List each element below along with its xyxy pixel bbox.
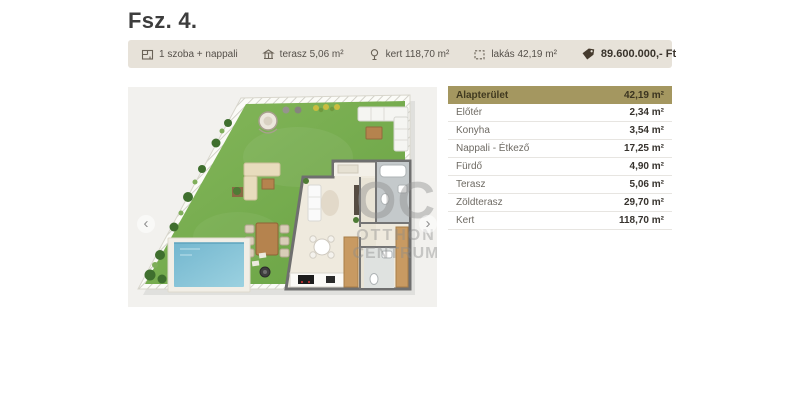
row-value: 17,25 m² [624, 143, 664, 154]
carousel-prev-button[interactable]: ‹ [137, 215, 155, 233]
room-icon [141, 48, 154, 61]
table-row: Zöldterasz 29,70 m² [448, 194, 672, 212]
table-row: Nappali - Étkező 17,25 m² [448, 140, 672, 158]
carousel-next-button[interactable]: › [419, 215, 437, 233]
row-label: Nappali - Étkező [456, 143, 529, 154]
summary-item-label: lakás 42,19 m² [491, 49, 557, 60]
row-value: 4,90 m² [630, 161, 664, 172]
row-value: 2,34 m² [630, 107, 664, 118]
page-title: Fsz. 4. [128, 9, 672, 32]
price-label: 89.600.000,- Ft [601, 48, 676, 60]
listing-detail: Fsz. 4. 1 szoba + nappali terasz 5,06 m² [128, 0, 672, 307]
header-value: 42,19 m² [624, 90, 664, 101]
terrace-icon [262, 48, 275, 61]
price: 89.600.000,- Ft [581, 47, 676, 61]
header-label: Alapterület [456, 90, 508, 101]
summary-item-rooms: 1 szoba + nappali [141, 48, 238, 61]
summary-item-apartment: lakás 42,19 m² [473, 48, 557, 61]
table-row: Előtér 2,34 m² [448, 104, 672, 122]
row-label: Kert [456, 215, 474, 226]
row-label: Zöldterasz [456, 197, 503, 208]
row-label: Fürdő [456, 161, 482, 172]
table-header-row: Alapterület 42,19 m² [448, 86, 672, 104]
garden-icon [368, 48, 381, 61]
property-summary-bar: 1 szoba + nappali terasz 5,06 m² kert 11… [128, 40, 672, 68]
summary-item-label: terasz 5,06 m² [280, 49, 344, 60]
table-row: Kert 118,70 m² [448, 212, 672, 230]
row-value: 118,70 m² [619, 215, 664, 226]
summary-item-label: 1 szoba + nappali [159, 49, 238, 60]
row-value: 5,06 m² [630, 179, 664, 190]
table-row: Terasz 5,06 m² [448, 176, 672, 194]
summary-item-garden: kert 118,70 m² [368, 48, 450, 61]
watermark-centrum: CENTRUM [353, 245, 438, 262]
floor-plan-image: OC OTTHON CENTRUM [128, 87, 437, 307]
row-label: Terasz [456, 179, 485, 190]
price-tag-icon [581, 47, 595, 61]
area-icon [473, 48, 486, 61]
table-row: Fürdő 4,90 m² [448, 158, 672, 176]
row-value: 3,54 m² [630, 125, 664, 136]
room-area-table: Alapterület 42,19 m² Előtér 2,34 m² Kony… [448, 86, 672, 307]
floorplan-carousel: OC OTTHON CENTRUM ‹ › [128, 87, 437, 307]
table-row: Konyha 3,54 m² [448, 122, 672, 140]
row-label: Konyha [456, 125, 490, 136]
row-label: Előtér [456, 107, 482, 118]
summary-item-terrace: terasz 5,06 m² [262, 48, 344, 61]
row-value: 29,70 m² [624, 197, 664, 208]
summary-item-label: kert 118,70 m² [386, 49, 450, 60]
